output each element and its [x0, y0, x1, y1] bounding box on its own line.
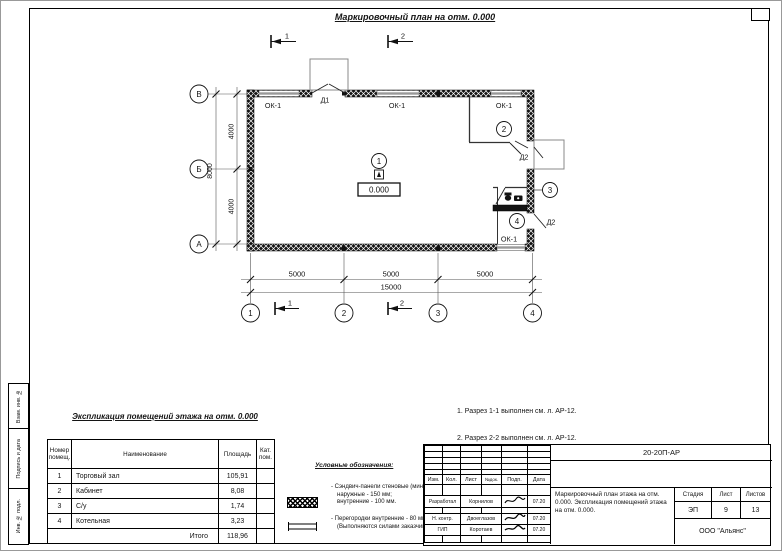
window-label: ОК-1	[496, 101, 512, 110]
signature-scribble	[502, 496, 528, 508]
explication-header-row: Номер помещ. Наименование Площадь Кат. п…	[48, 440, 275, 469]
room-num: 3	[48, 499, 72, 514]
signature-scribble	[502, 525, 528, 536]
staff-role: Разработал	[425, 496, 461, 508]
partition-icon	[287, 519, 318, 537]
side-strip: Взам. инв. № Подпись и дата Инв. № подл.	[8, 384, 29, 545]
door2-label: Д2	[520, 153, 529, 162]
sheet-label: Лист	[711, 488, 740, 502]
legend-line: (Выполняются силами заказчика).	[331, 524, 432, 532]
room-cat	[257, 499, 275, 514]
staff-role: Н. контр.	[425, 514, 461, 525]
room-num: 1	[48, 469, 72, 484]
axis-col-4: 4	[530, 309, 535, 318]
axis-row-b: Б	[196, 165, 201, 174]
side-box-podpis: Подпись и дата	[8, 428, 29, 489]
side-box-inv: Инв. № подл.	[8, 488, 29, 545]
side-box-label: Подпись и дата	[16, 439, 22, 479]
room-cat	[257, 484, 275, 499]
window-symbols	[259, 91, 525, 251]
table-row: 3 С/у 1,74	[48, 499, 275, 514]
dim-5000: 5000	[383, 270, 400, 279]
door2-label: Д2	[547, 218, 556, 227]
boiler-partition	[493, 205, 527, 211]
sandwich-panel-icon	[287, 497, 318, 508]
explication-title: Экспликация помещений этажа на отм. 0.00…	[49, 412, 281, 421]
title-block-gap	[550, 461, 772, 488]
col-list: Лист	[461, 475, 482, 485]
col-podp: Подп.	[502, 475, 528, 485]
side-box-label: Инв. № подл.	[16, 499, 22, 533]
col-header-name: Наименование	[72, 440, 219, 469]
document-number: 20-20П-АР	[550, 445, 772, 461]
side-porch	[534, 140, 564, 169]
sink-icon	[514, 196, 523, 202]
room-mark-1: 1	[377, 157, 382, 166]
axis-col-3: 3	[436, 309, 441, 318]
side-box-label: Взам. инв. №	[16, 389, 22, 423]
dim-5000: 5000	[477, 270, 494, 279]
column-markers	[249, 92, 441, 251]
legend-item-partitions: - Перегородки внутренние - 80 мм (Выполн…	[331, 516, 432, 531]
company-name: ООО "Альянс"	[674, 519, 770, 544]
table-row: 2 Кабинет 8,08	[48, 484, 275, 499]
staff-row-ncontrol: Н. контр. Двоеглазов 07.20	[425, 514, 551, 525]
revision-header-row: Изм. Кол. Лист №док. Подп. Дата	[425, 475, 551, 485]
drawing-sheet: 0.000 1 2 3 4 ОК-1 ОК-1 ОК-1 ОК-1 Д1 Д2 …	[0, 0, 782, 551]
staff-name: Двоеглазов	[461, 514, 502, 525]
col-kol: Кол.	[443, 475, 461, 485]
section-mark-1: 1	[285, 32, 289, 41]
legend-line: - Перегородки внутренние - 80 мм	[331, 516, 432, 524]
room-cat	[257, 514, 275, 529]
window-label: ОК-1	[265, 101, 281, 110]
explication-table: Номер помещ. Наименование Площадь Кат. п…	[47, 439, 275, 544]
staff-date: 07.20	[528, 525, 551, 536]
section-mark-1: 1	[288, 299, 292, 308]
room-name: Торговый зал	[72, 469, 219, 484]
dim-15000: 15000	[381, 283, 402, 292]
window-label: ОК-1	[501, 235, 517, 244]
total-value: 118,96	[219, 529, 257, 544]
col-header-cat: Кат. пом.	[257, 440, 275, 469]
window-label: ОК-1	[389, 101, 405, 110]
staff-row-developer: Разработал Корнилов 07.20	[425, 496, 551, 508]
axis-row-a: А	[196, 240, 202, 249]
exterior-walls	[247, 90, 534, 251]
note-line: 2. Разрез 2-2 выполнен см. л. АР-12.	[457, 434, 619, 443]
room-mark-3: 3	[548, 186, 553, 195]
room-mark-2: 2	[502, 125, 507, 134]
section-mark-2: 2	[400, 299, 404, 308]
drawing-title: Маркировочный план на отм. 0.000	[319, 12, 511, 22]
axis-row-v: В	[196, 90, 201, 99]
col-header-area: Площадь	[219, 440, 257, 469]
room-num: 4	[48, 514, 72, 529]
dim-4000: 4000	[229, 124, 236, 140]
room-name: С/у	[72, 499, 219, 514]
elevation-value: 0.000	[369, 186, 390, 195]
room-area: 105,91	[219, 469, 257, 484]
col-data: Дата	[528, 475, 551, 485]
room-area: 1,74	[219, 499, 257, 514]
level-mark-icon	[375, 170, 384, 179]
room-mark-4: 4	[515, 217, 520, 226]
col-izm: Изм.	[425, 475, 443, 485]
stage-value: ЭП	[674, 502, 711, 519]
section-mark-2: 2	[401, 32, 405, 41]
staff-row-gip: ГИП Коротаев 07.20	[425, 525, 551, 536]
side-box-vzam: Взам. инв. №	[8, 383, 29, 429]
room-cat	[257, 469, 275, 484]
title-block: Изм. Кол. Лист №док. Подп. Дата Разработ…	[423, 444, 771, 546]
dim-5000: 5000	[289, 270, 306, 279]
left-dimensions: В Б А 8000 4000 4000	[190, 85, 247, 253]
legend-title: Условные обозначения:	[315, 462, 393, 469]
door1-label: Д1	[321, 96, 330, 105]
total-row: Итого 118,96	[48, 529, 275, 544]
total-label: Итого	[48, 529, 219, 544]
room-num: 2	[48, 484, 72, 499]
col-ndoc: №док.	[482, 475, 502, 485]
room-name: Котельная	[72, 514, 219, 529]
sheets-label: Листов	[740, 488, 770, 502]
room-area: 3,23	[219, 514, 257, 529]
toilet-icon	[505, 193, 512, 201]
sheet-title-text: Маркировочный план этажа на отм. 0.000. …	[550, 488, 674, 544]
room-name: Кабинет	[72, 484, 219, 499]
sheet-number: 9	[711, 502, 740, 519]
stage-label: Стадия	[674, 488, 711, 502]
staff-role: ГИП	[425, 525, 461, 536]
note-line: 1. Разрез 1-1 выполнен см. л. АР-12.	[457, 407, 619, 416]
room-area: 8,08	[219, 484, 257, 499]
signature-scribble	[502, 514, 528, 525]
bottom-dimensions: 5000 5000 5000 15000 1 2 3 4	[241, 253, 542, 322]
staff-date: 07.20	[528, 514, 551, 525]
table-row: 4 Котельная 3,23	[48, 514, 275, 529]
title-block-revision-table: Изм. Кол. Лист №док. Подп. Дата Разработ…	[424, 445, 551, 543]
table-row: 1 Торговый зал 105,91	[48, 469, 275, 484]
axis-col-1: 1	[248, 309, 253, 318]
dim-8000: 8000	[207, 163, 214, 179]
col-header-num: Номер помещ.	[48, 440, 72, 469]
staff-name: Корнилов	[461, 496, 502, 508]
sheets-total: 13	[740, 502, 770, 519]
staff-date: 07.20	[528, 496, 551, 508]
entrance-canopy	[310, 59, 348, 90]
dim-4000: 4000	[229, 199, 236, 215]
axis-col-2: 2	[342, 309, 347, 318]
staff-name: Коротаев	[461, 525, 502, 536]
